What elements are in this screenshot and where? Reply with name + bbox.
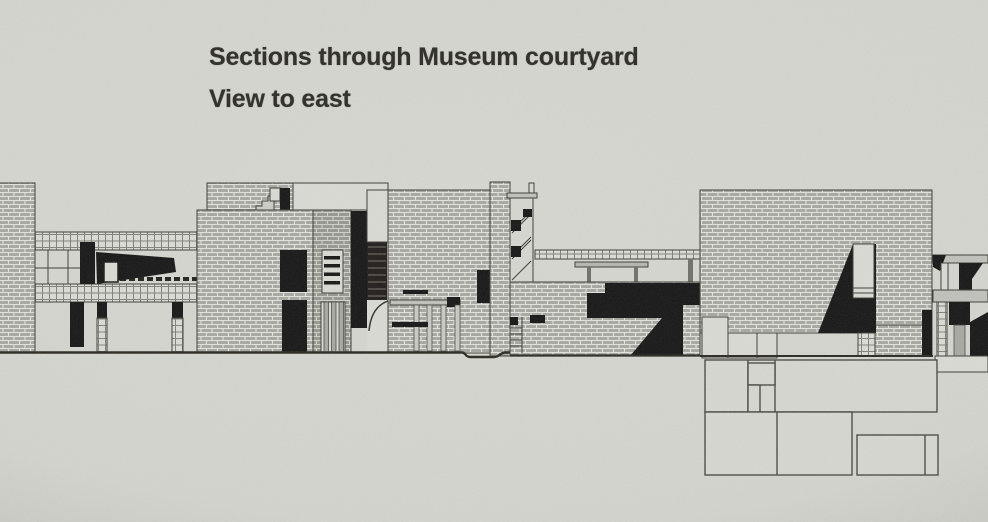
panel-photo: { "title": { "line1": "Sections through … — [0, 0, 988, 522]
photo-grain — [0, 0, 988, 522]
section-drawing — [0, 0, 988, 522]
panel-stage: Sections through Museum courtyard View t… — [0, 0, 988, 522]
